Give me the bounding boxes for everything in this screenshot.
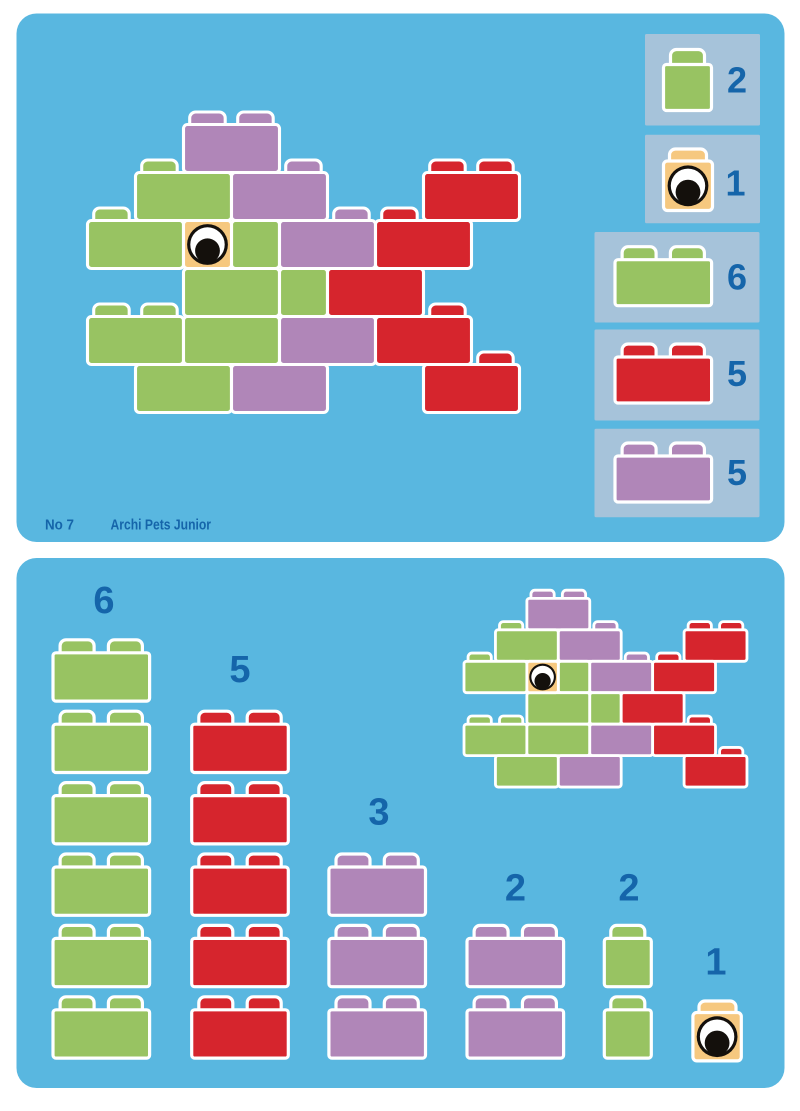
svg-text:1: 1 (725, 162, 745, 203)
svg-text:5: 5 (727, 353, 747, 394)
svg-text:Archi Pets Junior: Archi Pets Junior (111, 518, 212, 534)
svg-text:2: 2 (505, 868, 526, 910)
svg-text:5: 5 (229, 649, 250, 691)
svg-text:6: 6 (727, 257, 747, 298)
svg-text:1: 1 (705, 942, 726, 984)
svg-text:No 7: No 7 (45, 518, 74, 534)
svg-text:6: 6 (93, 580, 114, 622)
svg-text:3: 3 (368, 792, 389, 834)
svg-text:2: 2 (727, 60, 747, 101)
svg-text:2: 2 (618, 868, 639, 910)
svg-text:5: 5 (727, 452, 747, 493)
